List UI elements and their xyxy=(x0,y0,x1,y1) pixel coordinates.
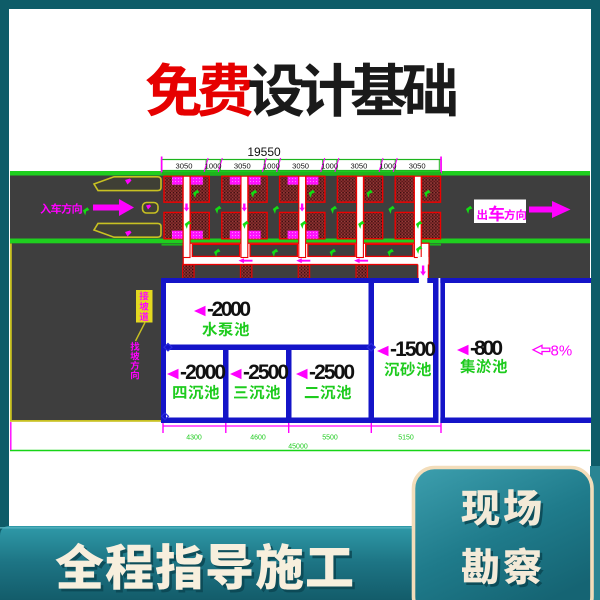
svg-text:4300: 4300 xyxy=(186,435,202,442)
svg-text:5150: 5150 xyxy=(398,435,414,442)
svg-text:-2000: -2000 xyxy=(180,361,226,384)
svg-text:1000: 1000 xyxy=(263,161,280,170)
svg-text:1000: 1000 xyxy=(321,161,338,170)
svg-text:5500: 5500 xyxy=(322,435,338,442)
svg-text:-2500: -2500 xyxy=(243,361,289,384)
svg-text:3050: 3050 xyxy=(350,161,367,170)
svg-text:3050: 3050 xyxy=(292,161,309,170)
svg-text:-2000: -2000 xyxy=(207,298,251,321)
svg-text:-1500: -1500 xyxy=(390,338,436,361)
svg-text:8%: 8% xyxy=(551,343,573,360)
svg-text:1000: 1000 xyxy=(205,161,222,170)
svg-text:-800: -800 xyxy=(470,337,503,360)
svg-text:3050: 3050 xyxy=(409,161,426,170)
svg-text:3050: 3050 xyxy=(234,161,251,170)
svg-text:1000: 1000 xyxy=(380,161,397,170)
svg-text:19550: 19550 xyxy=(247,145,281,159)
svg-text:45000: 45000 xyxy=(288,444,308,451)
svg-text:-2500: -2500 xyxy=(309,361,355,384)
svg-text:3050: 3050 xyxy=(176,161,193,170)
svg-text:4600: 4600 xyxy=(250,435,266,442)
